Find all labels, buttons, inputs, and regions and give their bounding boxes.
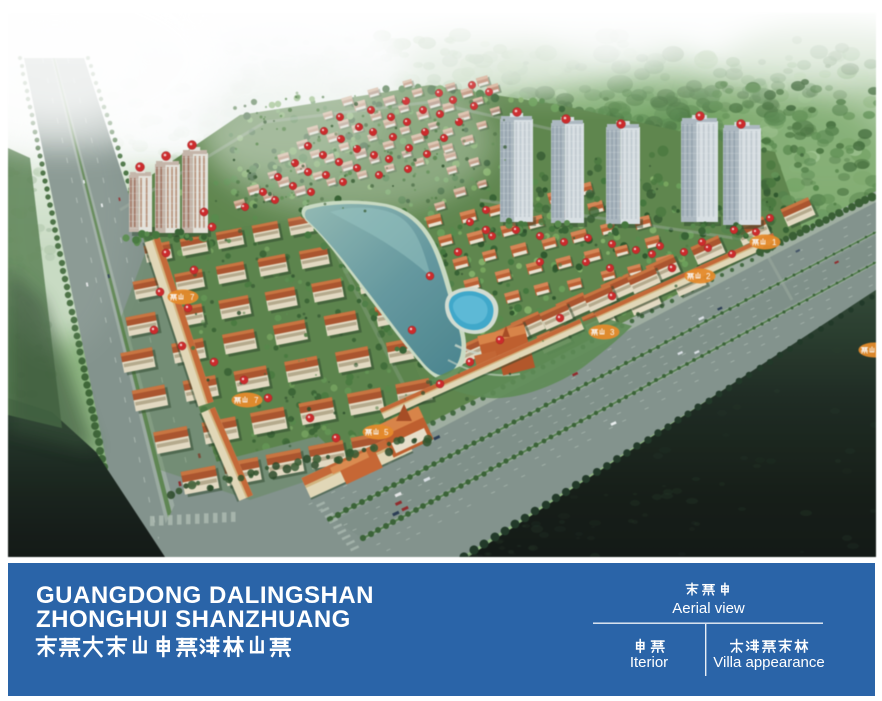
- svg-text:Aerial view: Aerial view: [672, 600, 745, 617]
- svg-text:Villa appearance: Villa appearance: [713, 654, 824, 671]
- svg-text:Iterior: Iterior: [630, 654, 668, 671]
